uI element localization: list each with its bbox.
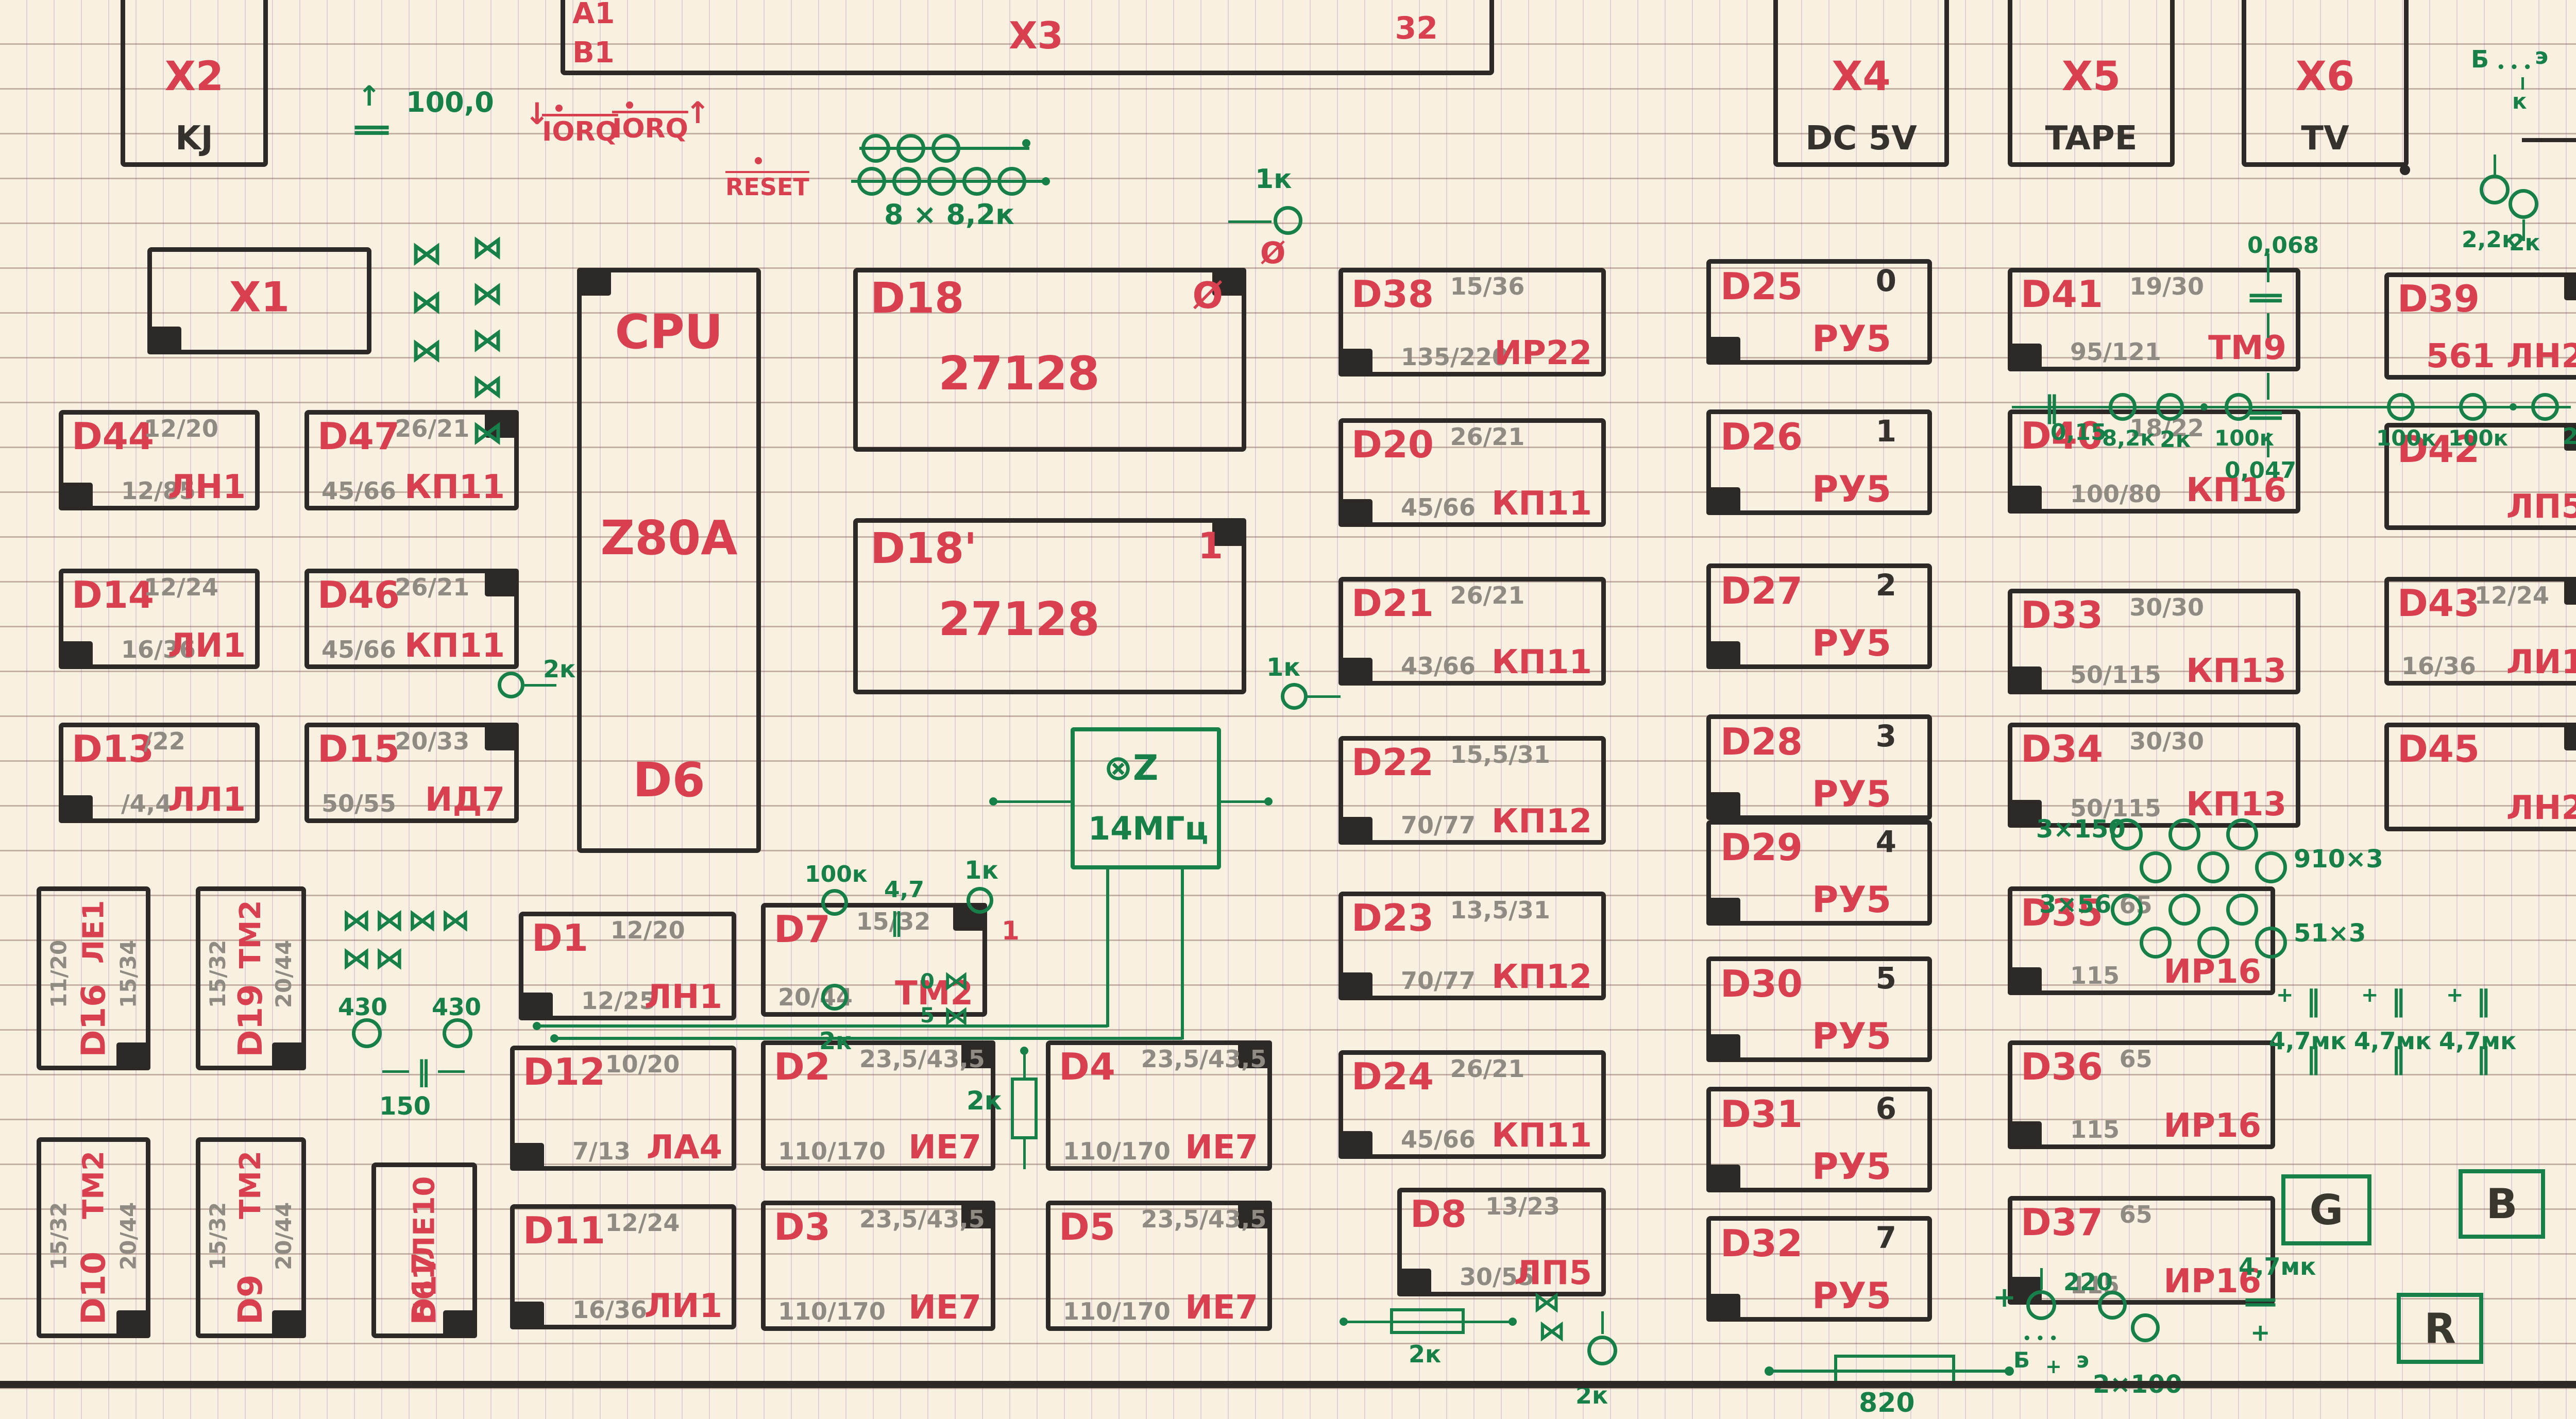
annotation-label: + bbox=[2250, 1321, 2270, 1344]
chip-label-vias: 110/170 bbox=[778, 1300, 886, 1323]
annotation-label: 220 bbox=[2063, 1270, 2113, 1294]
port-X2: X2KJ bbox=[121, 0, 268, 167]
port-X4-label: X4 bbox=[1832, 57, 1890, 97]
chip-label-name: D31 bbox=[1720, 1096, 1803, 1133]
annotation-label: 100,0 bbox=[406, 89, 494, 116]
chip-D1-body: D112/2012/25ЛН1 bbox=[523, 916, 732, 1016]
chip-D18b-body: D18'127128 bbox=[858, 523, 1242, 690]
wire bbox=[438, 1070, 465, 1073]
junction-dot bbox=[1340, 1318, 1348, 1326]
chip-D11: D1112/2416/36ЛИ1 bbox=[510, 1204, 736, 1329]
diode-pair-icon: ⋈ bbox=[440, 905, 470, 935]
chip-label-part: КП13 bbox=[2186, 655, 2286, 688]
chip-D22-body: D2215,5/3170/77КП12 bbox=[1343, 741, 1601, 840]
chip-label-pads: 11/20 bbox=[48, 939, 70, 1007]
diode-pair-icon: ⋈ bbox=[943, 968, 969, 994]
chip-label-vias: 15/34 bbox=[117, 939, 139, 1007]
chip-label-name: D30 bbox=[1720, 965, 1803, 1002]
chip-D4-body: D423,5/43,5110/170ИЕ7 bbox=[1050, 1045, 1267, 1166]
chip-label-pads: 13,5/31 bbox=[1450, 898, 1550, 922]
chip-D41-body: D4119/3095/121ТМ9 bbox=[2012, 272, 2296, 367]
resistor-ring bbox=[2168, 818, 2200, 850]
chip-D18-body: D18Ø27128 bbox=[858, 272, 1242, 447]
wire bbox=[524, 684, 556, 687]
chip-label-name: D47 bbox=[317, 418, 400, 455]
chip-label-part: РУ5 bbox=[1812, 625, 1891, 661]
chip-label-part: ЛИ1 bbox=[645, 1290, 722, 1323]
junction-dot bbox=[1509, 1318, 1517, 1326]
annotation-label: 2к bbox=[819, 1029, 852, 1053]
chip-label-part: РУ5 bbox=[1812, 471, 1891, 507]
port-X2-label: X2 bbox=[165, 57, 224, 97]
capacitor-icon: ‖ bbox=[2306, 987, 2320, 1016]
chip-label-part: КП11 bbox=[1492, 1119, 1592, 1152]
chip-label-vias: 16/36 bbox=[2401, 654, 2476, 678]
chip-D19-body: D19ТМ215/3220/44 bbox=[206, 897, 296, 1060]
chip-label-name: D4 bbox=[1059, 1048, 1115, 1085]
port-X4-sublabel: DC 5V bbox=[1805, 122, 1917, 155]
chip-label-vias: 45/66 bbox=[321, 479, 396, 503]
chip-CPU-body: CPUZ80AD6 bbox=[582, 272, 756, 848]
video-output-b-box: B bbox=[2459, 1169, 2545, 1239]
chip-label-part: ТМ2 bbox=[236, 1151, 265, 1219]
chip-label-name: D46 bbox=[317, 576, 400, 613]
chip-label-name: D9 bbox=[234, 1274, 267, 1325]
chip-label-bit: 4 bbox=[1876, 827, 1896, 857]
chip-label-vias: 20/44 bbox=[273, 939, 295, 1007]
chip-D37: D3765115ИР16 bbox=[2008, 1196, 2275, 1305]
junction-dot bbox=[755, 157, 762, 164]
chip-label-part: КП13 bbox=[2186, 788, 2286, 821]
chip-label-pads: 15,5/31 bbox=[1450, 743, 1550, 766]
chip-D44-body: D4412/2012/85ЛН1 bbox=[63, 415, 255, 506]
chip-label-vias: 110/170 bbox=[1063, 1139, 1171, 1163]
chip-label-vias: 100/80 bbox=[2070, 482, 2161, 506]
chip-D10-body: D10ТМ215/3220/44 bbox=[47, 1148, 140, 1328]
chip-D27-body: D272РУ5 bbox=[1711, 568, 1927, 664]
chip-label-vias: 95/121 bbox=[2070, 340, 2161, 364]
chip-label-part: РУ5 bbox=[1812, 321, 1891, 357]
resistor-ring bbox=[2225, 393, 2252, 421]
chip-label-name: D29 bbox=[1720, 829, 1803, 866]
annotation-label: RESET bbox=[725, 175, 809, 199]
annotation-label: 100к bbox=[805, 863, 868, 886]
chip-D10: D10ТМ215/3220/44 bbox=[37, 1137, 150, 1338]
chip-label-part: ИЕ7 bbox=[908, 1131, 981, 1164]
chip-label-name: CPU bbox=[615, 309, 723, 356]
chip-D37-body: D3765115ИР16 bbox=[2012, 1201, 2270, 1300]
chip-CPU: CPUZ80AD6 bbox=[577, 268, 761, 853]
wire bbox=[2522, 138, 2576, 142]
junction-dot bbox=[2005, 1366, 2014, 1376]
annotation-label: + bbox=[2446, 985, 2464, 1005]
chip-label-designator: D6 bbox=[633, 757, 705, 804]
annotation-label: 150 bbox=[379, 1094, 431, 1119]
chip-label-part: КП11 bbox=[1492, 646, 1592, 679]
chip-label-part: 27128 bbox=[938, 351, 1099, 397]
chip-label-vias: 115 bbox=[2070, 964, 2120, 987]
annotation-label: 8 × 8,2к bbox=[884, 201, 1014, 229]
chip-label-vias: 115 bbox=[2070, 1118, 2120, 1141]
port-X5-label: X5 bbox=[2062, 57, 2121, 97]
chip-label-name: X1 bbox=[229, 277, 290, 318]
schematic-board: A1 B1 X3 32 ⊗Z 14МГц X2KJX4DC 5VX5TAPEX6… bbox=[0, 0, 2576, 1419]
chip-label-part: РУ5 bbox=[1812, 1018, 1891, 1054]
chip-D30: D305РУ5 bbox=[1706, 956, 1932, 1062]
chip-label-bit: 3 bbox=[1876, 721, 1896, 751]
resistor-ring bbox=[2131, 1313, 2160, 1342]
annotation-label: 1к bbox=[1255, 166, 1292, 193]
wire bbox=[2267, 253, 2269, 282]
resistor-ring bbox=[997, 167, 1026, 196]
annotation-label: 2к bbox=[2509, 232, 2540, 254]
wire bbox=[1023, 1139, 1026, 1169]
chip-label-part: ТМ2 bbox=[236, 900, 265, 968]
resistor-ring bbox=[2197, 927, 2229, 959]
chip-label-name: D24 bbox=[1351, 1058, 1434, 1095]
chip-D3: D323,5/43,5110/170ИЕ7 bbox=[761, 1201, 995, 1331]
annotation-label: 5 bbox=[920, 1005, 935, 1026]
chip-D9-body: D9ТМ215/3220/44 bbox=[206, 1148, 296, 1328]
annotation-label: 0,15 bbox=[2050, 421, 2107, 444]
crystal-oscillator: ⊗Z 14МГц bbox=[1071, 727, 1221, 869]
capacitor-icon: ‖ bbox=[417, 1057, 431, 1085]
junction-dot bbox=[550, 1034, 558, 1042]
wire bbox=[2494, 155, 2496, 175]
resistor-ring bbox=[2480, 175, 2510, 204]
chip-D20-body: D2026/2145/66КП11 bbox=[1343, 423, 1601, 522]
port-X6-sublabel: TV bbox=[2301, 122, 2349, 155]
chip-D26: D261РУ5 bbox=[1706, 409, 1932, 515]
chip-D15-body: D1520/3350/55ИД7 bbox=[309, 727, 514, 818]
resistor-ring bbox=[967, 887, 993, 914]
wire bbox=[2521, 77, 2524, 90]
wire bbox=[1308, 695, 1341, 698]
chip-label-pads: 15/32 bbox=[48, 1202, 70, 1270]
chip-label-vias: /4,4 bbox=[121, 792, 172, 815]
junction-dot bbox=[1765, 1366, 1774, 1376]
diode-pair-icon: ⋈ bbox=[342, 905, 371, 935]
chip-D22: D2215,5/3170/77КП12 bbox=[1338, 736, 1606, 845]
chip-label-pads: 23,5/43,5 bbox=[859, 1207, 985, 1231]
chip-D38-body: D3815/36135/220ИР22 bbox=[1343, 272, 1601, 372]
chip-label-name: D16 bbox=[77, 984, 110, 1057]
capacitor-icon: ‖ bbox=[2476, 987, 2490, 1016]
chip-D19: D19ТМ215/3220/44 bbox=[196, 886, 306, 1070]
chip-D36: D3665115ИР16 bbox=[2008, 1040, 2275, 1149]
chip-label-vias: 16/36 bbox=[572, 1298, 647, 1322]
chip-label-pads: 26/21 bbox=[395, 417, 469, 440]
annotation-label: э bbox=[2535, 45, 2548, 68]
diode-pair-icon: ⋈ bbox=[1533, 1288, 1561, 1316]
chip-label-part: ТМ2 bbox=[79, 1151, 108, 1219]
chip-D14: D1412/2416/36ЛИ1 bbox=[59, 569, 260, 669]
diode-pair-icon: ⋈ bbox=[1538, 1317, 1566, 1345]
resistor-ring bbox=[2226, 894, 2258, 926]
chip-label-pads: 23,5/43,5 bbox=[1141, 1207, 1267, 1231]
wire bbox=[2040, 1268, 2043, 1290]
chip-label-bit: 1 bbox=[1876, 416, 1896, 446]
chip-label-vias: 20/44 bbox=[117, 1202, 139, 1270]
video-output-r-box: R bbox=[2397, 1293, 2483, 1364]
resistor-ring bbox=[2109, 393, 2137, 421]
chip-label-pads: 15/32 bbox=[207, 939, 229, 1007]
resistor-ring bbox=[498, 672, 524, 698]
annotation-label: 51×3 bbox=[2294, 921, 2366, 946]
annotation-label: к bbox=[2512, 91, 2527, 112]
chip-D8: D813/2330/55ЛП5 bbox=[1397, 1188, 1606, 1296]
chip-D41: D4119/3095/121ТМ9 bbox=[2008, 268, 2300, 371]
chip-label-pads: 19/30 bbox=[2129, 275, 2204, 298]
chip-D43: D4312/2416/36ЛИ1 bbox=[2384, 577, 2576, 686]
chip-D31-body: D316РУ5 bbox=[1711, 1091, 1927, 1188]
chip-D24-body: D2426/2145/66КП11 bbox=[1343, 1055, 1601, 1154]
wire bbox=[1181, 869, 1184, 1039]
chip-label-pads: 13/23 bbox=[1485, 1194, 1560, 1218]
chip-label-pads: 30/30 bbox=[2129, 729, 2204, 753]
chip-label-name: D3 bbox=[774, 1208, 831, 1245]
chip-label-name: D32 bbox=[1720, 1225, 1803, 1262]
chip-label-name: D19 bbox=[234, 984, 267, 1057]
chip-label-part: ЛП5 bbox=[1514, 1257, 1592, 1290]
wire bbox=[1601, 1311, 1604, 1334]
chip-label-pads: 26/21 bbox=[1450, 584, 1525, 607]
chip-D32-body: D327РУ5 bbox=[1711, 1221, 1927, 1317]
chip-D5: D523,5/43,5110/170ИЕ7 bbox=[1046, 1201, 1272, 1331]
chip-label-name: D13 bbox=[72, 730, 154, 767]
wire bbox=[1221, 800, 1270, 803]
annotation-label: • • • bbox=[2023, 1332, 2058, 1345]
chip-D28: D283РУ5 bbox=[1706, 714, 1932, 820]
capacitor-icon: ‖ bbox=[2391, 1045, 2405, 1073]
chip-label-name: D8 bbox=[1410, 1195, 1467, 1233]
annotation-label: 0 bbox=[920, 971, 935, 992]
port-X2-sublabel: KJ bbox=[175, 122, 213, 155]
chip-D16-body: D16ЛЕ111/2015/34 bbox=[47, 897, 140, 1060]
chip-label-part: ИР16 bbox=[2163, 1109, 2261, 1142]
chip-label-vias: 50/55 bbox=[321, 792, 396, 815]
chip-D43-body: D4312/2416/36ЛИ1 bbox=[2389, 582, 2576, 681]
chip-D7: D715/3220/44ТМ2 bbox=[761, 903, 987, 1017]
resistor-ring bbox=[861, 134, 890, 163]
chip-D20: D2026/2145/66КП11 bbox=[1338, 418, 1606, 527]
chip-label-name: D39 bbox=[2397, 280, 2480, 317]
diode-pair-icon: ⋈ bbox=[342, 943, 371, 973]
annotation-label: Б bbox=[2471, 47, 2489, 71]
wire bbox=[552, 1037, 1182, 1040]
chip-label-pads: 65 bbox=[2120, 1047, 2153, 1071]
annotation-label: + bbox=[2361, 985, 2379, 1005]
annotation-label: IORQ bbox=[612, 115, 688, 142]
diode-pair-icon: ⋈ bbox=[471, 324, 503, 356]
chip-D13-body: D13/22/4,4ЛЛ1 bbox=[63, 727, 255, 818]
chip-label-vias: 70/77 bbox=[1401, 813, 1476, 837]
capacitor-icon: ‖ bbox=[357, 122, 391, 139]
annotation-label: + bbox=[2276, 985, 2294, 1005]
crystal-frequency: 14МГц bbox=[1088, 813, 1208, 845]
chip-label-pads: 12/20 bbox=[611, 918, 685, 942]
chip-label-name: D21 bbox=[1351, 585, 1434, 622]
chip-label-name: D22 bbox=[1351, 744, 1434, 781]
chip-D23-body: D2313,5/3170/77КП12 bbox=[1343, 896, 1601, 996]
chip-label-name: D43 bbox=[2397, 585, 2480, 622]
wire bbox=[2267, 313, 2269, 338]
video-output-g-box: G bbox=[2281, 1174, 2371, 1245]
chip-D46-body: D4626/2145/66КП11 bbox=[309, 573, 514, 664]
chip-label-pads: 12/24 bbox=[144, 575, 218, 599]
diode-pair-icon: ⋈ bbox=[375, 905, 404, 935]
chip-D26-body: D261РУ5 bbox=[1711, 414, 1927, 510]
chip-label-pads: 20/33 bbox=[395, 729, 469, 753]
chip-label-name: D41 bbox=[2021, 276, 2103, 313]
chip-label-part: ЛН1 bbox=[168, 471, 246, 504]
chip-label-part: КП12 bbox=[1492, 805, 1592, 838]
resistor-ring bbox=[443, 1018, 472, 1048]
chip-D15: D1520/3350/55ИД7 bbox=[304, 723, 519, 823]
chip-label-pads: 12/24 bbox=[605, 1211, 680, 1235]
capacitor-icon: ‖ bbox=[890, 909, 903, 935]
resistor-ring bbox=[821, 984, 848, 1011]
chip-label-part: ИР22 bbox=[1494, 337, 1592, 370]
resistor-ring bbox=[2255, 851, 2287, 883]
resistor-ring bbox=[2098, 1291, 2127, 1320]
annotation-label: 2к bbox=[967, 1088, 1002, 1114]
chip-label-part: ЛА4 bbox=[647, 1131, 722, 1164]
chip-D21: D2126/2143/66КП11 bbox=[1338, 577, 1606, 686]
chip-label-name: D12 bbox=[523, 1053, 605, 1090]
chip-D12: D1210/207/13ЛА4 bbox=[510, 1046, 736, 1171]
chip-label-name: D11 bbox=[523, 1212, 605, 1249]
chip-D2: D223,5/43,5110/170ИЕ7 bbox=[761, 1040, 995, 1171]
annotation-label: Б bbox=[2013, 1349, 2030, 1371]
resistor-ring bbox=[1587, 1336, 1617, 1365]
wire bbox=[2012, 406, 2571, 408]
annotation-label: э bbox=[2076, 1349, 2089, 1371]
chip-label-bit: 2 bbox=[1876, 570, 1896, 600]
resistor-box bbox=[1011, 1078, 1038, 1139]
capacitor-icon: ‖ bbox=[2391, 987, 2405, 1016]
wire bbox=[1106, 869, 1109, 1027]
chip-label-bank: 1 bbox=[1198, 528, 1223, 564]
diode-pair-icon: ⋈ bbox=[471, 417, 503, 449]
junction-dot bbox=[2510, 403, 2517, 411]
capacitor-icon: ‖ bbox=[2252, 290, 2284, 306]
chip-label-part: ЛИ1 bbox=[2506, 646, 2576, 679]
capacitor-icon: ‖ bbox=[2252, 407, 2284, 423]
chip-D13: D13/22/4,4ЛЛ1 bbox=[59, 723, 260, 823]
port-X6-label: X6 bbox=[2296, 57, 2354, 97]
chip-label-name: D44 bbox=[72, 418, 154, 455]
chip-label-bit: 0 bbox=[1876, 266, 1896, 296]
chip-label-name: D36 bbox=[2021, 1048, 2103, 1085]
chip-label-bit: 7 bbox=[1876, 1223, 1896, 1253]
annotation-label: + bbox=[2045, 1357, 2062, 1376]
annotation-label: 2к bbox=[1409, 1342, 1441, 1366]
annotation-label: 3×56 bbox=[2039, 892, 2111, 917]
chip-X1-body: X1 bbox=[152, 252, 367, 350]
chip-D23: D2313,5/3170/77КП12 bbox=[1338, 892, 1606, 1000]
chip-D33: D3330/3050/115КП13 bbox=[2008, 589, 2300, 694]
chip-D5-body: D523,5/43,5110/170ИЕ7 bbox=[1050, 1205, 1267, 1326]
chip-D2-body: D223,5/43,5110/170ИЕ7 bbox=[766, 1045, 991, 1166]
chip-label-vias: 45/66 bbox=[1401, 1127, 1476, 1151]
annotation-label: 430 bbox=[338, 995, 387, 1019]
chip-D16: D16ЛЕ111/2015/34 bbox=[37, 886, 150, 1070]
annotation-label: ↑ bbox=[358, 82, 381, 110]
chip-label-part: КП11 bbox=[1492, 487, 1592, 520]
chip-label-pads: 12/20 bbox=[144, 417, 218, 440]
chip-label-part: ИЕ7 bbox=[1185, 1291, 1258, 1324]
chip-label-part: ИД7 bbox=[425, 783, 505, 816]
chip-label-vias: 45/66 bbox=[1401, 495, 1476, 519]
chip-label-pads: 15/36 bbox=[1450, 275, 1525, 298]
chip-D29-body: D294РУ5 bbox=[1711, 825, 1927, 921]
chip-label-bank: Ø bbox=[1192, 278, 1223, 314]
annotation-label: + bbox=[1993, 1284, 2016, 1311]
resistor-ring bbox=[2226, 818, 2258, 850]
wire bbox=[1228, 220, 1272, 223]
annotation-label: 2к bbox=[2563, 425, 2576, 448]
chip-D25: D250РУ5 bbox=[1706, 259, 1932, 365]
chip-label-part: КП11 bbox=[404, 629, 505, 662]
chip-label-name: D45 bbox=[2397, 730, 2480, 767]
resistor-ring bbox=[2459, 393, 2487, 421]
wire bbox=[1023, 1051, 1026, 1078]
connector-x3-pin-a: A1 bbox=[572, 0, 615, 28]
annotation-label: • • • bbox=[2497, 61, 2532, 74]
resistor-ring bbox=[2156, 393, 2184, 421]
wire bbox=[382, 1070, 409, 1073]
chip-label-vias: 135/220 bbox=[1401, 345, 1509, 369]
chip-label-name: D23 bbox=[1351, 899, 1434, 936]
port-X4: X4DC 5V bbox=[1773, 0, 1949, 167]
diode-pair-icon: ⋈ bbox=[471, 278, 503, 310]
resistor-ring bbox=[2111, 818, 2143, 850]
chip-D12-body: D1210/207/13ЛА4 bbox=[515, 1050, 732, 1166]
chip-D46: D4626/2145/66КП11 bbox=[304, 569, 519, 669]
chip-label-vias: 43/66 bbox=[1401, 654, 1476, 678]
chip-D31: D316РУ5 bbox=[1706, 1087, 1932, 1192]
chip-D27: D272РУ5 bbox=[1706, 563, 1932, 669]
chip-label-pads: 10/20 bbox=[605, 1052, 680, 1076]
junction-dot bbox=[989, 797, 997, 806]
annotation-label: 0,068 bbox=[2247, 234, 2319, 257]
annotation-label: 910×3 bbox=[2294, 847, 2383, 871]
chip-D34: D3430/3050/115КП13 bbox=[2008, 723, 2300, 828]
wire bbox=[2267, 373, 2269, 400]
resistor-ring bbox=[2026, 1290, 2056, 1320]
resistor-ring bbox=[2111, 894, 2143, 926]
chip-label-part: ИР16 bbox=[2163, 955, 2261, 988]
annotation-label: 1к bbox=[964, 858, 998, 883]
annotation-label: 430 bbox=[432, 995, 481, 1019]
chip-D18: D18Ø27128 bbox=[853, 268, 1246, 452]
diode-pair-icon: ⋈ bbox=[471, 231, 503, 263]
chip-label-pads: 23,5/43,5 bbox=[859, 1047, 985, 1071]
chip-label-name: D18 bbox=[870, 278, 964, 320]
connector-x3: A1 B1 X3 32 bbox=[561, 0, 1494, 75]
resistor-ring bbox=[962, 167, 991, 196]
annotation-label: 100к bbox=[2448, 428, 2508, 449]
annotation-label: Ø bbox=[1260, 238, 1285, 268]
chip-X1: X1 bbox=[147, 247, 371, 354]
chip-D11-body: D1112/2416/36ЛИ1 bbox=[515, 1209, 732, 1325]
resistor-ring bbox=[1274, 206, 1302, 235]
annotation-label: 1к bbox=[1266, 655, 1300, 680]
annotation-label: 100к bbox=[2376, 428, 2436, 449]
diode-pair-icon: ⋈ bbox=[411, 237, 443, 269]
chip-label-part: РУ5 bbox=[1812, 882, 1891, 918]
